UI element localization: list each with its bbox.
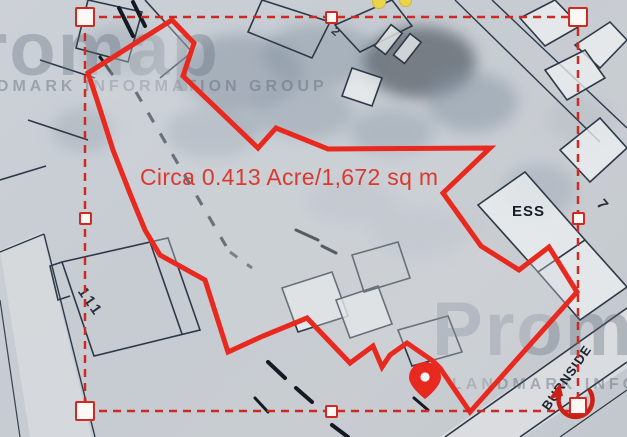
area-measurement-label[interactable]: Circa 0.413 Acre/1,672 sq m	[140, 164, 438, 191]
property-boundary-polygon[interactable]	[88, 20, 577, 412]
selection-handle-bottom-middle[interactable]	[325, 405, 338, 418]
selection-handle-top-left[interactable]	[75, 7, 95, 27]
selection-overlay	[0, 0, 627, 437]
selection-handle-top-right[interactable]	[568, 7, 588, 27]
selection-handle-bottom-right[interactable]	[569, 397, 587, 415]
location-pin-icon[interactable]	[409, 362, 441, 399]
selection-handle-top-middle[interactable]	[325, 11, 338, 24]
selection-handle-bottom-left[interactable]	[75, 401, 95, 421]
selection-handle-middle-left[interactable]	[79, 212, 92, 225]
promap-plan-view: Promap LANDMARK INFORMATION GROUP Promap…	[0, 0, 627, 437]
selection-handle-middle-right[interactable]	[572, 212, 585, 225]
